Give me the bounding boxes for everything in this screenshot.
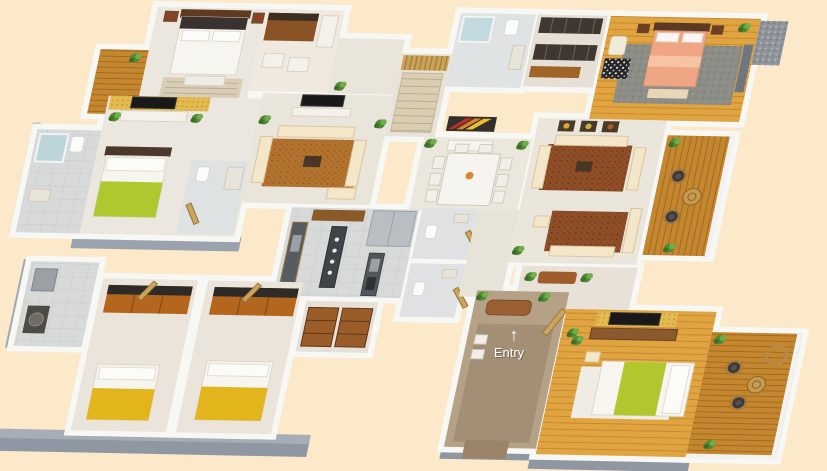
room-bedroom-4 [536, 309, 717, 457]
vanity [28, 189, 51, 201]
nightstand [636, 24, 650, 33]
bench [184, 76, 226, 86]
headboard [653, 22, 711, 31]
pillow [682, 33, 704, 43]
tv [301, 95, 345, 107]
sink [454, 214, 470, 223]
pillow [105, 157, 166, 171]
pillow [98, 367, 157, 380]
room-family-lounge [240, 93, 393, 205]
coffee-table [575, 161, 593, 171]
pillow [207, 364, 270, 377]
armchair [608, 36, 628, 55]
stool [471, 349, 485, 358]
upper-cabinets [311, 210, 365, 222]
sink [442, 269, 458, 278]
sofa [554, 135, 628, 147]
ottoman [287, 58, 310, 72]
room-upper-hall [327, 38, 405, 95]
sofa [549, 246, 615, 257]
pillow [181, 30, 210, 41]
chaise [326, 188, 356, 200]
bench [647, 89, 689, 99]
wardrobe-top [268, 13, 320, 21]
shower [459, 17, 494, 42]
room-master-bedroom-1 [138, 7, 268, 104]
bed-mustard-blanket [195, 387, 268, 421]
room-bedroom-3 [80, 95, 264, 236]
ottoman [585, 352, 601, 362]
floor-plan-render: ↑ Entry Entry [0, 0, 827, 471]
tv-cabinet [589, 328, 677, 341]
toilet [195, 167, 210, 182]
drawer-unit [529, 66, 581, 78]
stool [474, 335, 488, 344]
wall-niches [557, 120, 619, 132]
room-master-bedroom-2 [589, 16, 761, 122]
toilet [503, 19, 519, 35]
entry-step [462, 440, 510, 459]
entry-label: Entry [494, 345, 525, 360]
toilet [412, 282, 426, 296]
building [0, 0, 827, 471]
shelf-unit [31, 269, 58, 292]
room-store [295, 301, 378, 353]
toilet [69, 136, 85, 152]
wood-slat-screen [401, 55, 450, 71]
room-bathroom-2 [445, 13, 536, 88]
accent-rug [601, 58, 631, 79]
tv [609, 312, 662, 325]
bench [485, 300, 532, 316]
bed-mustard-blanket [86, 388, 155, 421]
ottoman [262, 53, 285, 67]
coffee-table [303, 156, 322, 167]
bed-runner [179, 17, 248, 30]
tv-cabinet [120, 111, 188, 122]
pillow [212, 31, 241, 42]
entry-arrow-icon: ↑ [510, 325, 519, 345]
bed-band [647, 55, 701, 67]
console [537, 271, 578, 284]
tv-unit [291, 107, 351, 116]
tv [130, 97, 176, 109]
shower [35, 134, 69, 162]
pillow [656, 33, 680, 43]
floor-plan-stage: ↑ Entry Entry [0, 0, 827, 471]
nightstand [710, 25, 724, 34]
ottoman [533, 216, 550, 227]
bed-lime-blanket [93, 181, 162, 217]
toilet [424, 225, 438, 239]
sofa [277, 126, 355, 139]
